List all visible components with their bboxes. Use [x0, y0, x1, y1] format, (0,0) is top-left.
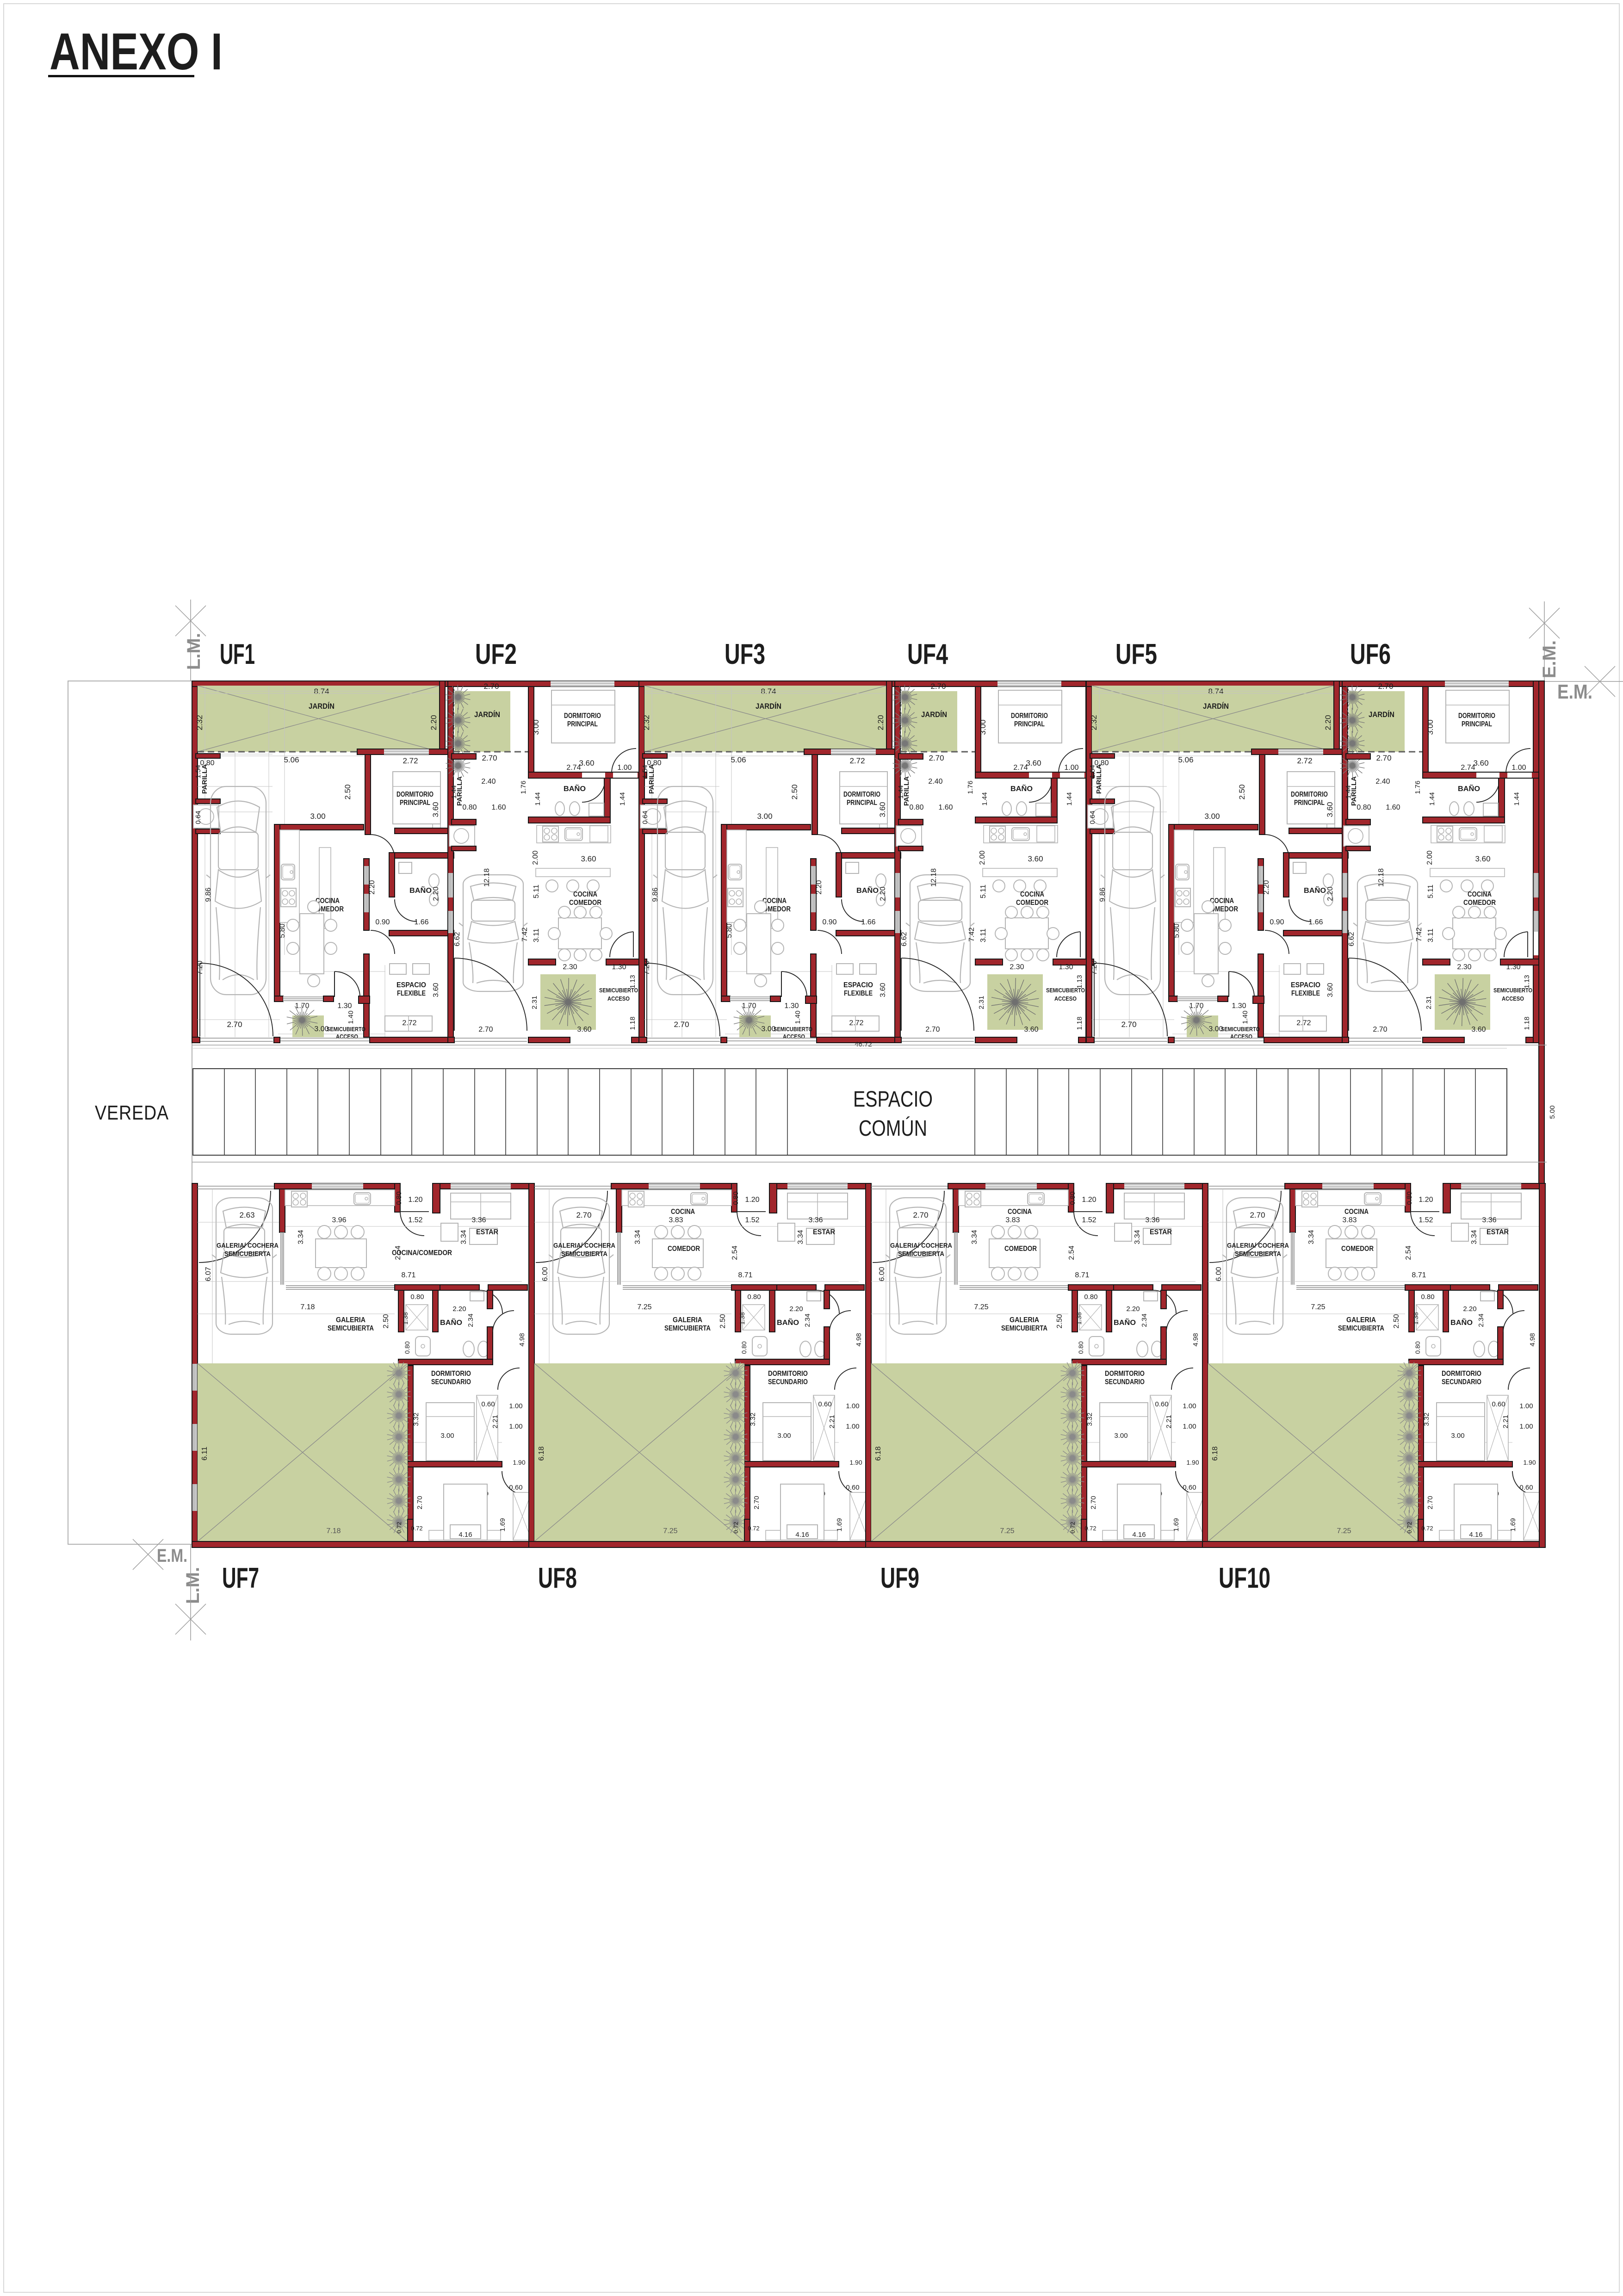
svg-text:2.32: 2.32 [1090, 715, 1098, 730]
svg-text:UF3: UF3 [725, 638, 765, 670]
svg-text:2.70: 2.70 [227, 1020, 242, 1029]
svg-text:2.70: 2.70 [913, 1211, 928, 1219]
svg-text:6.62: 6.62 [453, 932, 461, 946]
svg-text:2.21: 2.21 [491, 1415, 499, 1428]
svg-text:1.44: 1.44 [1065, 792, 1073, 805]
svg-text:FLEXIBLE: FLEXIBLE [397, 990, 426, 997]
svg-text:3.96: 3.96 [332, 1216, 346, 1224]
svg-text:3.11: 3.11 [1427, 928, 1435, 942]
svg-text:ESPACIO: ESPACIO [396, 981, 426, 989]
svg-text:1.38: 1.38 [402, 1312, 409, 1324]
svg-text:COCINA: COCINA [1468, 891, 1492, 898]
svg-text:2.20: 2.20 [452, 1305, 466, 1313]
svg-text:ACCESO: ACCESO [336, 1033, 358, 1040]
svg-text:3.34: 3.34 [1134, 1230, 1141, 1244]
svg-text:0.60: 0.60 [509, 1484, 522, 1491]
svg-text:SECUNDARIO: SECUNDARIO [1442, 1378, 1481, 1386]
svg-text:12.18: 12.18 [1377, 868, 1385, 887]
svg-text:1.52: 1.52 [1082, 1216, 1096, 1224]
svg-text:3.60: 3.60 [1024, 1026, 1038, 1034]
svg-text:2.20: 2.20 [432, 886, 440, 901]
svg-text:8.71: 8.71 [1075, 1271, 1089, 1279]
svg-text:3.00: 3.00 [310, 812, 325, 821]
svg-text:3.32: 3.32 [1086, 1412, 1094, 1426]
svg-text:2.20: 2.20 [1463, 1305, 1476, 1313]
svg-text:VEREDA: VEREDA [95, 1102, 169, 1124]
svg-text:UF8: UF8 [538, 1562, 577, 1594]
svg-text:6.07: 6.07 [204, 1267, 212, 1281]
svg-text:1.44: 1.44 [897, 785, 905, 798]
svg-text:2.74: 2.74 [566, 764, 581, 772]
svg-text:0.80: 0.80 [395, 1191, 403, 1205]
svg-text:0.60: 0.60 [1492, 1400, 1505, 1408]
svg-text:1.69: 1.69 [1509, 1518, 1517, 1531]
svg-text:1.30: 1.30 [612, 963, 626, 971]
svg-text:DORMITORIO: DORMITORIO [1291, 791, 1328, 798]
svg-text:0.80: 0.80 [403, 1341, 411, 1354]
svg-text:3.36: 3.36 [1145, 1216, 1159, 1224]
svg-text:2.72: 2.72 [1297, 756, 1312, 765]
svg-text:2.72: 2.72 [849, 1019, 863, 1027]
svg-text:1.20: 1.20 [745, 1196, 759, 1204]
svg-text:1.38: 1.38 [1412, 1312, 1419, 1324]
svg-text:1.54: 1.54 [641, 765, 649, 778]
svg-text:1.90: 1.90 [849, 1459, 862, 1466]
svg-text:BAÑO: BAÑO [1114, 1318, 1136, 1327]
svg-text:ACCESO: ACCESO [607, 995, 630, 1002]
svg-text:2.72: 2.72 [1296, 1019, 1311, 1027]
svg-text:3.32: 3.32 [749, 1412, 757, 1426]
svg-text:9.86: 9.86 [1099, 887, 1107, 902]
svg-text:E.M.: E.M. [157, 1546, 187, 1566]
svg-text:1.44: 1.44 [450, 785, 458, 798]
svg-text:SECUNDARIO: SECUNDARIO [431, 1378, 471, 1386]
svg-text:2.70: 2.70 [482, 754, 497, 762]
svg-text:8.71: 8.71 [401, 1271, 415, 1279]
svg-text:5.11: 5.11 [533, 885, 540, 898]
svg-text:6.18: 6.18 [538, 1446, 545, 1461]
svg-text:0.80: 0.80 [1077, 1341, 1084, 1354]
svg-text:2.70: 2.70 [925, 1026, 940, 1034]
svg-text:2.00: 2.00 [979, 850, 986, 865]
svg-text:1.40: 1.40 [347, 1010, 355, 1024]
svg-text:E.M.: E.M. [1557, 681, 1592, 703]
svg-text:1.44: 1.44 [981, 792, 989, 805]
svg-text:7.25: 7.25 [663, 1527, 677, 1535]
svg-text:3.60: 3.60 [431, 802, 440, 817]
svg-text:JARDÍN: JARDÍN [474, 710, 500, 719]
svg-text:UF5: UF5 [1115, 638, 1157, 670]
svg-text:COMEDOR: COMEDOR [1004, 1245, 1037, 1253]
svg-text:1.44: 1.44 [619, 792, 626, 805]
svg-text:5.11: 5.11 [1427, 885, 1435, 898]
svg-text:2.34: 2.34 [1140, 1313, 1148, 1327]
svg-text:0.80: 0.80 [740, 1341, 748, 1354]
svg-text:2.70: 2.70 [929, 754, 944, 762]
svg-text:2.72: 2.72 [402, 1019, 416, 1027]
svg-text:4.16: 4.16 [795, 1531, 809, 1539]
svg-text:0.60: 0.60 [1183, 1484, 1196, 1491]
svg-text:ACCESO: ACCESO [1054, 995, 1077, 1002]
svg-text:3.60: 3.60 [579, 759, 594, 767]
svg-text:2.54: 2.54 [394, 1245, 402, 1260]
svg-text:SEMICUBIERTA: SEMICUBIERTA [561, 1250, 607, 1258]
svg-text:1.66: 1.66 [1308, 918, 1323, 926]
svg-text:1.20: 1.20 [408, 1196, 422, 1204]
svg-text:2.20: 2.20 [1126, 1305, 1140, 1313]
svg-text:7.42: 7.42 [521, 927, 529, 941]
svg-text:46.72: 46.72 [855, 1040, 872, 1048]
svg-text:1.40: 1.40 [1241, 1010, 1249, 1024]
svg-text:UF10: UF10 [1219, 1562, 1270, 1594]
svg-text:2.32: 2.32 [642, 715, 651, 730]
svg-text:3.60: 3.60 [581, 854, 596, 863]
svg-text:3.34: 3.34 [297, 1230, 305, 1244]
svg-text:1.60: 1.60 [1386, 804, 1400, 811]
svg-text:1.90: 1.90 [1186, 1459, 1199, 1466]
svg-text:2.74: 2.74 [1461, 764, 1475, 772]
svg-text:UF6: UF6 [1350, 638, 1391, 670]
svg-text:JARDÍN: JARDÍN [309, 702, 335, 711]
svg-text:DORMITORIO: DORMITORIO [1442, 1370, 1481, 1378]
svg-text:DORMITORIO: DORMITORIO [396, 791, 434, 798]
svg-text:BAÑO: BAÑO [777, 1318, 799, 1327]
svg-text:2.30: 2.30 [563, 963, 577, 971]
svg-text:1.00: 1.00 [846, 1402, 859, 1410]
svg-text:6.18: 6.18 [1211, 1446, 1219, 1461]
svg-text:1.69: 1.69 [1172, 1518, 1180, 1531]
svg-text:ANEXO I: ANEXO I [50, 23, 223, 80]
svg-text:4.98: 4.98 [1192, 1333, 1200, 1346]
svg-text:SEMICUBIERTO: SEMICUBIERTO [327, 1026, 365, 1033]
svg-text:COCINA: COCINA [573, 891, 597, 898]
svg-text:0.80: 0.80 [1421, 1293, 1434, 1301]
svg-text:GALERIA/ COCHERA: GALERIA/ COCHERA [1227, 1242, 1289, 1250]
svg-text:2.20: 2.20 [815, 880, 823, 894]
svg-text:0.80: 0.80 [462, 804, 477, 811]
svg-text:0.72: 0.72 [411, 1525, 422, 1532]
svg-text:0.60: 0.60 [846, 1484, 859, 1491]
svg-text:FLEXIBLE: FLEXIBLE [1291, 990, 1320, 997]
svg-text:1.00: 1.00 [617, 764, 632, 772]
svg-text:FLEXIBLE: FLEXIBLE [844, 990, 873, 997]
svg-text:3.00: 3.00 [1204, 812, 1220, 821]
svg-text:3.34: 3.34 [1307, 1230, 1315, 1244]
svg-text:1.20: 1.20 [1419, 1196, 1433, 1204]
svg-text:GALERIA/ COCHERA: GALERIA/ COCHERA [890, 1242, 952, 1250]
svg-text:2.20: 2.20 [876, 715, 885, 730]
svg-text:3.36: 3.36 [1482, 1216, 1496, 1224]
svg-text:BAÑO: BAÑO [856, 885, 879, 895]
svg-text:COCINA: COCINA [1008, 1208, 1032, 1216]
svg-text:2.20: 2.20 [789, 1305, 803, 1313]
svg-text:5.11: 5.11 [979, 885, 987, 898]
svg-text:7.25: 7.25 [637, 1303, 651, 1311]
svg-text:UF2: UF2 [475, 638, 517, 670]
svg-text:4.16: 4.16 [1132, 1531, 1146, 1539]
svg-text:SEMICUBIERTA: SEMICUBIERTA [1235, 1250, 1281, 1258]
svg-text:4.98: 4.98 [518, 1333, 526, 1346]
svg-text:1.30: 1.30 [784, 1002, 799, 1010]
svg-text:3.83: 3.83 [1342, 1216, 1357, 1224]
svg-text:2.70: 2.70 [576, 1211, 591, 1219]
svg-text:2.70: 2.70 [930, 682, 946, 691]
svg-text:0.72: 0.72 [1084, 1525, 1096, 1532]
svg-text:1.90: 1.90 [513, 1459, 525, 1466]
svg-text:PRINCIPAL: PRINCIPAL [1462, 720, 1492, 728]
svg-text:2.20: 2.20 [1324, 715, 1332, 730]
svg-text:2.21: 2.21 [1502, 1415, 1510, 1428]
svg-text:3.60: 3.60 [1473, 759, 1488, 767]
svg-text:7.18: 7.18 [300, 1303, 315, 1311]
svg-text:2.32: 2.32 [195, 715, 204, 730]
svg-text:1.76: 1.76 [520, 780, 527, 794]
svg-text:0.72: 0.72 [1406, 1522, 1413, 1533]
svg-text:0.72: 0.72 [1421, 1525, 1433, 1532]
svg-text:7.25: 7.25 [974, 1303, 988, 1311]
svg-text:DORMITORIO: DORMITORIO [1011, 712, 1048, 720]
svg-text:2.50: 2.50 [343, 784, 352, 799]
svg-text:0.80: 0.80 [1406, 1191, 1413, 1205]
svg-text:BAÑO: BAÑO [1304, 885, 1326, 895]
svg-text:GALERIA: GALERIA [336, 1316, 365, 1324]
svg-text:DORMITORIO: DORMITORIO [1458, 712, 1495, 720]
svg-text:1.00: 1.00 [509, 1423, 522, 1430]
svg-text:3.00: 3.00 [777, 1432, 791, 1440]
svg-text:DORMITORIO: DORMITORIO [1105, 1370, 1145, 1378]
svg-text:1.52: 1.52 [408, 1216, 422, 1224]
svg-text:3.60: 3.60 [1475, 854, 1490, 863]
svg-text:0.80: 0.80 [1357, 804, 1371, 811]
svg-text:2.54: 2.54 [731, 1245, 739, 1260]
svg-text:L.M.: L.M. [183, 1567, 203, 1604]
svg-text:3.00: 3.00 [761, 1025, 775, 1033]
svg-text:PRINCIPAL: PRINCIPAL [567, 720, 598, 728]
svg-text:1.18: 1.18 [1076, 1016, 1084, 1030]
svg-text:12.18: 12.18 [483, 868, 491, 887]
svg-text:DORMITORIO: DORMITORIO [843, 791, 880, 798]
svg-text:SECUNDARIO: SECUNDARIO [1105, 1378, 1145, 1386]
svg-text:2.70: 2.70 [674, 1020, 689, 1029]
svg-text:2.70: 2.70 [483, 682, 499, 691]
svg-text:1.76: 1.76 [966, 780, 974, 794]
svg-text:2.34: 2.34 [804, 1313, 811, 1327]
svg-text:3.00: 3.00 [314, 1025, 328, 1033]
svg-text:6.00: 6.00 [878, 1267, 886, 1281]
svg-text:1.66: 1.66 [414, 918, 428, 926]
svg-text:1.60: 1.60 [938, 804, 953, 811]
svg-text:1.69: 1.69 [499, 1518, 507, 1531]
svg-text:0.80: 0.80 [1414, 1341, 1421, 1354]
svg-text:2.70: 2.70 [1121, 1020, 1136, 1029]
svg-text:4.16: 4.16 [1469, 1531, 1482, 1539]
svg-text:ESTAR: ESTAR [813, 1228, 835, 1236]
svg-text:1.13: 1.13 [1076, 975, 1084, 988]
svg-text:9.86: 9.86 [204, 887, 212, 902]
svg-text:5.06: 5.06 [284, 755, 299, 764]
svg-text:SEMICUBIERTA: SEMICUBIERTA [1001, 1324, 1047, 1332]
svg-text:0.72: 0.72 [748, 1525, 759, 1532]
svg-text:1.00: 1.00 [1183, 1423, 1196, 1430]
svg-text:1.69: 1.69 [836, 1518, 843, 1531]
svg-text:3.60: 3.60 [577, 1026, 591, 1034]
svg-text:5.80: 5.80 [725, 923, 733, 938]
svg-text:3.00: 3.00 [440, 1432, 454, 1440]
svg-text:2.20: 2.20 [1263, 880, 1270, 894]
svg-text:3.60: 3.60 [1471, 1026, 1486, 1034]
svg-text:6.00: 6.00 [1215, 1267, 1223, 1281]
svg-text:COMEDOR: COMEDOR [668, 1245, 700, 1253]
svg-text:3.36: 3.36 [471, 1216, 486, 1224]
svg-text:1.13: 1.13 [629, 975, 637, 988]
svg-text:E.M.: E.M. [1539, 640, 1560, 678]
svg-text:1.30: 1.30 [1232, 1002, 1246, 1010]
svg-text:8.71: 8.71 [738, 1271, 752, 1279]
svg-text:1.44: 1.44 [1428, 792, 1436, 805]
svg-text:GALERIA: GALERIA [1010, 1316, 1039, 1324]
svg-text:2.50: 2.50 [719, 1314, 727, 1328]
svg-text:0.60: 0.60 [1155, 1400, 1168, 1408]
svg-text:0.72: 0.72 [396, 1522, 403, 1533]
svg-text:5.06: 5.06 [731, 755, 746, 764]
svg-text:0.64: 0.64 [641, 811, 649, 824]
svg-text:ESTAR: ESTAR [1487, 1228, 1509, 1236]
svg-text:3.60: 3.60 [1028, 854, 1043, 863]
svg-text:GALERIA/ COCHERA: GALERIA/ COCHERA [217, 1242, 279, 1250]
svg-text:PRINCIPAL: PRINCIPAL [400, 799, 430, 807]
svg-text:3.60: 3.60 [1326, 802, 1334, 817]
svg-text:BAÑO: BAÑO [564, 784, 586, 793]
svg-text:7.42: 7.42 [968, 927, 976, 941]
svg-text:COMEDOR: COMEDOR [1016, 899, 1048, 907]
svg-text:0.72: 0.72 [732, 1522, 739, 1533]
svg-text:7.42: 7.42 [1415, 927, 1423, 941]
svg-text:PRINCIPAL: PRINCIPAL [847, 799, 877, 807]
svg-text:2.20: 2.20 [879, 886, 887, 901]
svg-text:1.00: 1.00 [1511, 764, 1526, 772]
svg-text:6.62: 6.62 [900, 932, 908, 946]
svg-text:2.72: 2.72 [403, 756, 418, 765]
svg-text:2.50: 2.50 [790, 784, 799, 799]
svg-text:ESPACIO: ESPACIO [853, 1087, 933, 1112]
svg-text:5.06: 5.06 [1178, 755, 1193, 764]
svg-text:2.21: 2.21 [828, 1415, 836, 1428]
svg-text:UF9: UF9 [880, 1562, 919, 1594]
svg-text:COMEDOR: COMEDOR [1341, 1245, 1374, 1253]
svg-text:2.31: 2.31 [978, 996, 985, 1009]
svg-text:7.25: 7.25 [1337, 1527, 1351, 1535]
svg-text:1.52: 1.52 [1419, 1216, 1433, 1224]
svg-text:1.44: 1.44 [534, 792, 542, 805]
svg-text:0.80: 0.80 [410, 1293, 424, 1301]
svg-text:1.76: 1.76 [1414, 780, 1422, 794]
svg-text:1.30: 1.30 [337, 1002, 352, 1010]
svg-text:2.20: 2.20 [368, 880, 376, 894]
svg-text:3.00: 3.00 [1451, 1432, 1464, 1440]
svg-text:DORMITORIO: DORMITORIO [564, 712, 601, 720]
svg-text:JARDÍN: JARDÍN [756, 702, 781, 711]
svg-text:0.60: 0.60 [1519, 1484, 1533, 1491]
svg-text:9.86: 9.86 [651, 887, 659, 902]
svg-text:4.98: 4.98 [855, 1333, 863, 1346]
svg-text:GALERIA: GALERIA [673, 1316, 702, 1324]
svg-text:JARDÍN: JARDÍN [1203, 702, 1229, 711]
svg-text:0.60: 0.60 [818, 1400, 831, 1408]
svg-text:PRINCIPAL: PRINCIPAL [1294, 799, 1325, 807]
svg-text:1.52: 1.52 [745, 1216, 759, 1224]
svg-text:3.34: 3.34 [634, 1230, 642, 1244]
svg-text:5.00: 5.00 [1549, 1105, 1556, 1119]
svg-text:5.80: 5.80 [279, 923, 286, 938]
svg-text:2.20: 2.20 [429, 715, 438, 730]
svg-text:1.60: 1.60 [491, 804, 506, 811]
svg-text:1.44: 1.44 [1513, 792, 1521, 805]
svg-text:DORMITORIO: DORMITORIO [768, 1370, 808, 1378]
svg-text:0.64: 0.64 [1089, 811, 1096, 824]
svg-text:BAÑO: BAÑO [1010, 784, 1033, 793]
svg-text:2.34: 2.34 [467, 1313, 475, 1327]
svg-text:2.70: 2.70 [1376, 754, 1391, 762]
svg-text:3.34: 3.34 [971, 1230, 979, 1244]
svg-text:2.54: 2.54 [1405, 1245, 1412, 1260]
svg-text:2.00: 2.00 [1426, 850, 1434, 865]
svg-text:SEMICUBIERTA: SEMICUBIERTA [898, 1250, 944, 1258]
svg-text:3.60: 3.60 [1026, 759, 1041, 767]
svg-text:2.21: 2.21 [1165, 1415, 1173, 1428]
svg-text:0.64: 0.64 [194, 811, 202, 824]
svg-text:1.18: 1.18 [1523, 1016, 1531, 1030]
svg-text:DORMITORIO: DORMITORIO [431, 1370, 471, 1378]
svg-text:2.72: 2.72 [849, 756, 865, 765]
svg-text:3.32: 3.32 [1423, 1412, 1431, 1426]
svg-text:1.20: 1.20 [1082, 1196, 1096, 1204]
svg-text:2.40: 2.40 [928, 778, 942, 786]
svg-text:2.70: 2.70 [1373, 1026, 1387, 1034]
svg-text:7.25: 7.25 [1000, 1527, 1014, 1535]
svg-text:3.60: 3.60 [879, 983, 887, 997]
svg-text:0.90: 0.90 [1270, 918, 1284, 926]
svg-text:JARDÍN: JARDÍN [921, 710, 947, 719]
svg-text:0.90: 0.90 [822, 918, 836, 926]
svg-text:2.54: 2.54 [1068, 1245, 1076, 1260]
svg-text:COCINA: COCINA [1020, 891, 1044, 898]
svg-text:L.M.: L.M. [184, 633, 204, 670]
svg-text:3.11: 3.11 [979, 928, 987, 942]
svg-text:3.34: 3.34 [460, 1230, 468, 1244]
svg-text:1.00: 1.00 [1064, 764, 1078, 772]
svg-text:1.38: 1.38 [1075, 1312, 1083, 1324]
svg-text:0.60: 0.60 [481, 1400, 495, 1408]
svg-text:2.70: 2.70 [753, 1496, 761, 1509]
svg-text:1.40: 1.40 [794, 1010, 802, 1024]
svg-text:SECUNDARIO: SECUNDARIO [768, 1378, 808, 1386]
svg-text:2.70: 2.70 [416, 1496, 424, 1509]
svg-text:0.90: 0.90 [375, 918, 390, 926]
svg-text:4.16: 4.16 [458, 1531, 472, 1539]
svg-text:1.00: 1.00 [1519, 1402, 1533, 1410]
svg-text:GALERIA/ COCHERA: GALERIA/ COCHERA [553, 1242, 615, 1250]
svg-text:1.90: 1.90 [1523, 1459, 1536, 1466]
svg-text:2.31: 2.31 [531, 996, 539, 1009]
svg-text:2.74: 2.74 [1013, 764, 1028, 772]
svg-text:BAÑO: BAÑO [1458, 784, 1480, 793]
svg-text:2.50: 2.50 [1238, 784, 1246, 799]
svg-text:2.40: 2.40 [481, 778, 496, 786]
svg-text:0.80: 0.80 [1069, 1191, 1077, 1205]
svg-text:BAÑO: BAÑO [1450, 1318, 1473, 1327]
svg-text:1.00: 1.00 [1519, 1423, 1533, 1430]
svg-text:ESPACIO: ESPACIO [1291, 981, 1320, 989]
